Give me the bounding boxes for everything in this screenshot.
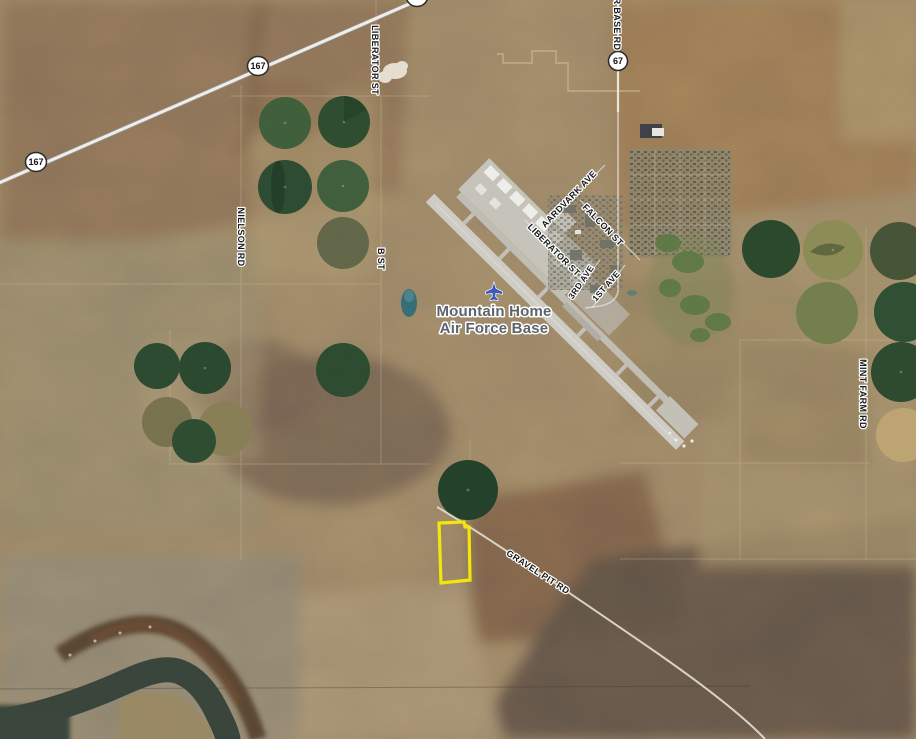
place-name-line1: Mountain Home	[436, 303, 551, 320]
road-label-b-st: B ST	[376, 248, 386, 270]
road-label-air-base-rd: R BASE RD	[612, 0, 622, 50]
shield-number: 167	[250, 61, 265, 71]
road-label-liberator-st-top: LIBERATOR ST	[370, 25, 380, 95]
highway-shield-167: 167	[248, 57, 269, 76]
highway-shield-167: 167	[26, 153, 47, 172]
satellite-map[interactable]: LIBERATOR ST R BASE RD NIELSON RD B ST A…	[0, 0, 916, 739]
shield-number: 67	[613, 56, 623, 66]
road-label-mint-farm-rd: MINT FARM RD	[858, 359, 868, 429]
satellite-grain	[0, 0, 916, 739]
map-viewport[interactable]: LIBERATOR ST R BASE RD NIELSON RD B ST A…	[0, 0, 916, 739]
shield-number: 167	[28, 157, 43, 167]
road-label-nielson-rd: NIELSON RD	[236, 207, 246, 266]
highway-shield-67: 67	[609, 52, 628, 71]
place-name-line2: Air Force Base	[440, 320, 549, 337]
